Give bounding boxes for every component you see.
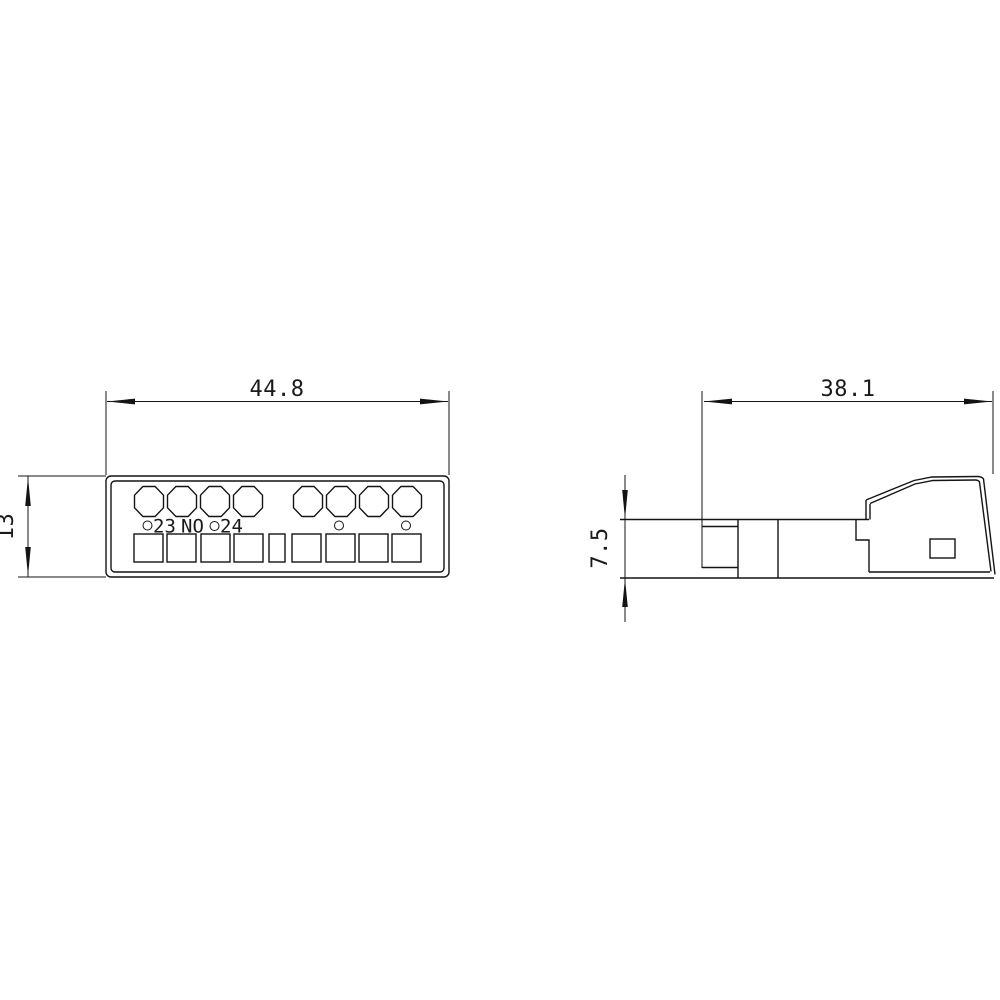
step-notch bbox=[856, 520, 869, 573]
arrowhead-left bbox=[704, 399, 732, 405]
clamp-opening bbox=[292, 534, 321, 562]
front-height-dimension: 13 bbox=[0, 476, 106, 577]
screw-head bbox=[294, 487, 323, 517]
front-height-value: 13 bbox=[0, 513, 19, 541]
front-view: 44.8 13 bbox=[0, 377, 449, 577]
screw-head bbox=[201, 487, 230, 517]
screw-head bbox=[393, 487, 422, 517]
clamp-opening bbox=[392, 534, 421, 562]
side-width-value: 38.1 bbox=[821, 377, 876, 402]
screw-head bbox=[327, 487, 356, 517]
clamp-opening bbox=[326, 534, 355, 562]
test-hole bbox=[143, 521, 152, 530]
drawing-svg: 44.8 13 bbox=[0, 0, 1000, 1000]
clip-wedge bbox=[866, 477, 995, 575]
test-hole bbox=[402, 521, 411, 530]
side-view: 38.1 7.5 bbox=[588, 377, 995, 622]
clamp-opening bbox=[167, 534, 196, 562]
screw-head bbox=[360, 487, 389, 517]
side-profile bbox=[620, 477, 995, 579]
center-slot bbox=[269, 534, 285, 562]
screw-heads bbox=[135, 487, 422, 517]
screw-head bbox=[234, 487, 263, 517]
screw-head bbox=[135, 487, 164, 517]
clip-wall-outer bbox=[866, 477, 995, 575]
clamp-opening bbox=[234, 534, 263, 562]
side-height-dimension: 7.5 bbox=[588, 475, 628, 622]
clamp-opening bbox=[201, 534, 230, 562]
arrowhead-right bbox=[964, 399, 992, 405]
screw-head bbox=[168, 487, 197, 517]
side-height-value: 7.5 bbox=[588, 527, 613, 568]
arrowhead-left bbox=[107, 399, 135, 405]
test-hole bbox=[335, 521, 344, 530]
arrowhead-down bbox=[25, 547, 31, 576]
arrowhead-up bbox=[25, 477, 31, 506]
technical-drawing: 44.8 13 bbox=[0, 0, 1000, 1000]
arrowhead-up bbox=[622, 579, 628, 608]
test-hole bbox=[210, 522, 219, 531]
clamp-opening bbox=[359, 534, 388, 562]
arrowhead-right bbox=[420, 399, 448, 405]
front-width-value: 44.8 bbox=[250, 377, 305, 402]
clamp-opening bbox=[134, 534, 163, 562]
front-housing: 23 NO 24 bbox=[106, 476, 449, 577]
clamp-openings bbox=[134, 534, 421, 562]
front-width-dimension: 44.8 bbox=[106, 377, 449, 475]
latch-window bbox=[930, 539, 955, 558]
arrowhead-down bbox=[622, 490, 628, 519]
